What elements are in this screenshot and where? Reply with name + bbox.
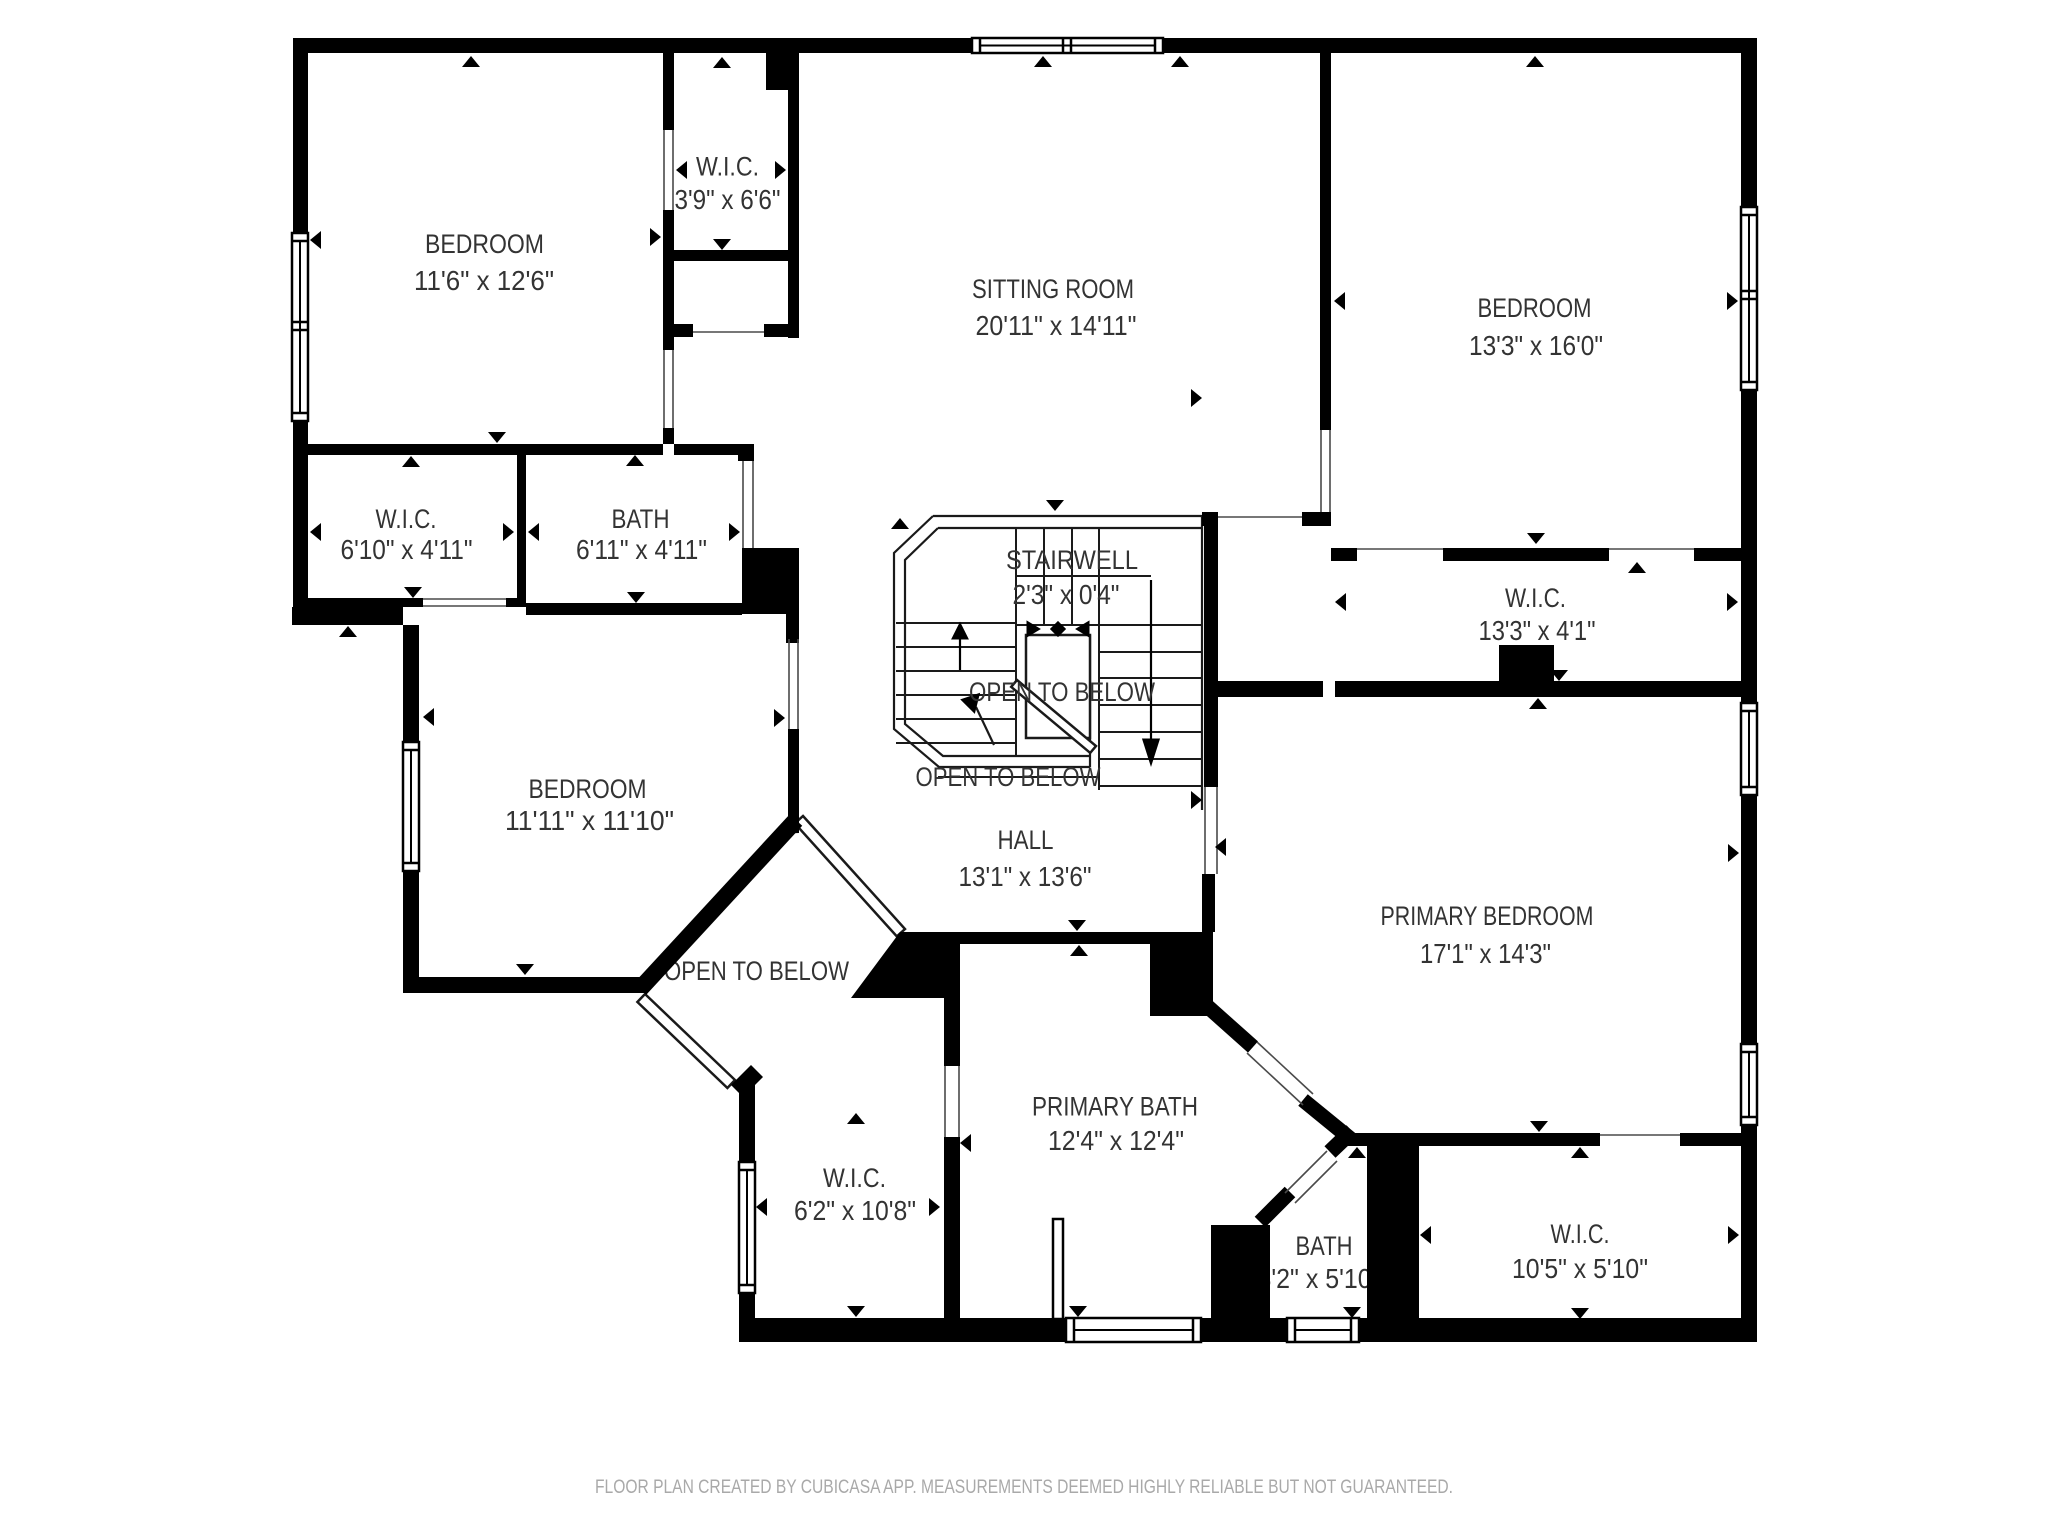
svg-text:11'11" x 11'10": 11'11" x 11'10" xyxy=(505,805,674,836)
svg-text:FLOOR PLAN CREATED BY CUBICASA: FLOOR PLAN CREATED BY CUBICASA APP. MEAS… xyxy=(595,1477,1453,1498)
svg-text:11'6" x 12'6": 11'6" x 12'6" xyxy=(414,265,554,296)
svg-text:10'5" x 5'10": 10'5" x 5'10" xyxy=(1512,1253,1648,1284)
svg-text:BATH: BATH xyxy=(612,504,670,534)
svg-text:SITTING ROOM: SITTING ROOM xyxy=(972,274,1134,304)
svg-text:BEDROOM: BEDROOM xyxy=(529,774,647,804)
svg-text:OPEN TO BELOW: OPEN TO BELOW xyxy=(664,956,849,986)
svg-text:6'2" x 10'8": 6'2" x 10'8" xyxy=(794,1195,916,1226)
svg-text:W.I.C.: W.I.C. xyxy=(696,152,759,182)
svg-text:W.I.C.: W.I.C. xyxy=(1551,1219,1610,1249)
svg-text:BEDROOM: BEDROOM xyxy=(425,229,544,259)
svg-text:W.I.C.: W.I.C. xyxy=(823,1163,886,1193)
svg-text:2'3" x 0'4": 2'3" x 0'4" xyxy=(1013,579,1120,610)
svg-text:6'11" x 4'11": 6'11" x 4'11" xyxy=(576,534,707,565)
svg-text:3'2" x 5'10": 3'2" x 5'10" xyxy=(1258,1263,1381,1294)
svg-text:BEDROOM: BEDROOM xyxy=(1478,293,1592,323)
svg-text:HALL: HALL xyxy=(998,825,1054,855)
svg-text:PRIMARY BEDROOM: PRIMARY BEDROOM xyxy=(1381,901,1594,931)
svg-text:20'11" x 14'11": 20'11" x 14'11" xyxy=(976,310,1137,341)
svg-text:STAIRWELL: STAIRWELL xyxy=(1006,545,1138,575)
svg-text:PRIMARY BATH: PRIMARY BATH xyxy=(1032,1092,1198,1122)
svg-text:17'1" x 14'3": 17'1" x 14'3" xyxy=(1420,938,1551,969)
svg-text:BATH: BATH xyxy=(1296,1231,1353,1261)
svg-text:6'10" x 4'11": 6'10" x 4'11" xyxy=(341,534,473,565)
svg-text:W.I.C.: W.I.C. xyxy=(1505,583,1566,613)
svg-text:13'3" x 16'0": 13'3" x 16'0" xyxy=(1469,330,1603,361)
svg-text:3'9" x 6'6": 3'9" x 6'6" xyxy=(675,184,781,215)
svg-text:W.I.C.: W.I.C. xyxy=(376,504,437,534)
svg-text:OPEN TO BELOW: OPEN TO BELOW xyxy=(916,762,1101,792)
svg-text:13'3" x 4'1": 13'3" x 4'1" xyxy=(1479,615,1596,646)
svg-text:13'1" x 13'6": 13'1" x 13'6" xyxy=(959,861,1092,892)
svg-text:12'4" x 12'4": 12'4" x 12'4" xyxy=(1048,1125,1184,1156)
svg-text:OPEN TO BELOW: OPEN TO BELOW xyxy=(969,677,1155,707)
